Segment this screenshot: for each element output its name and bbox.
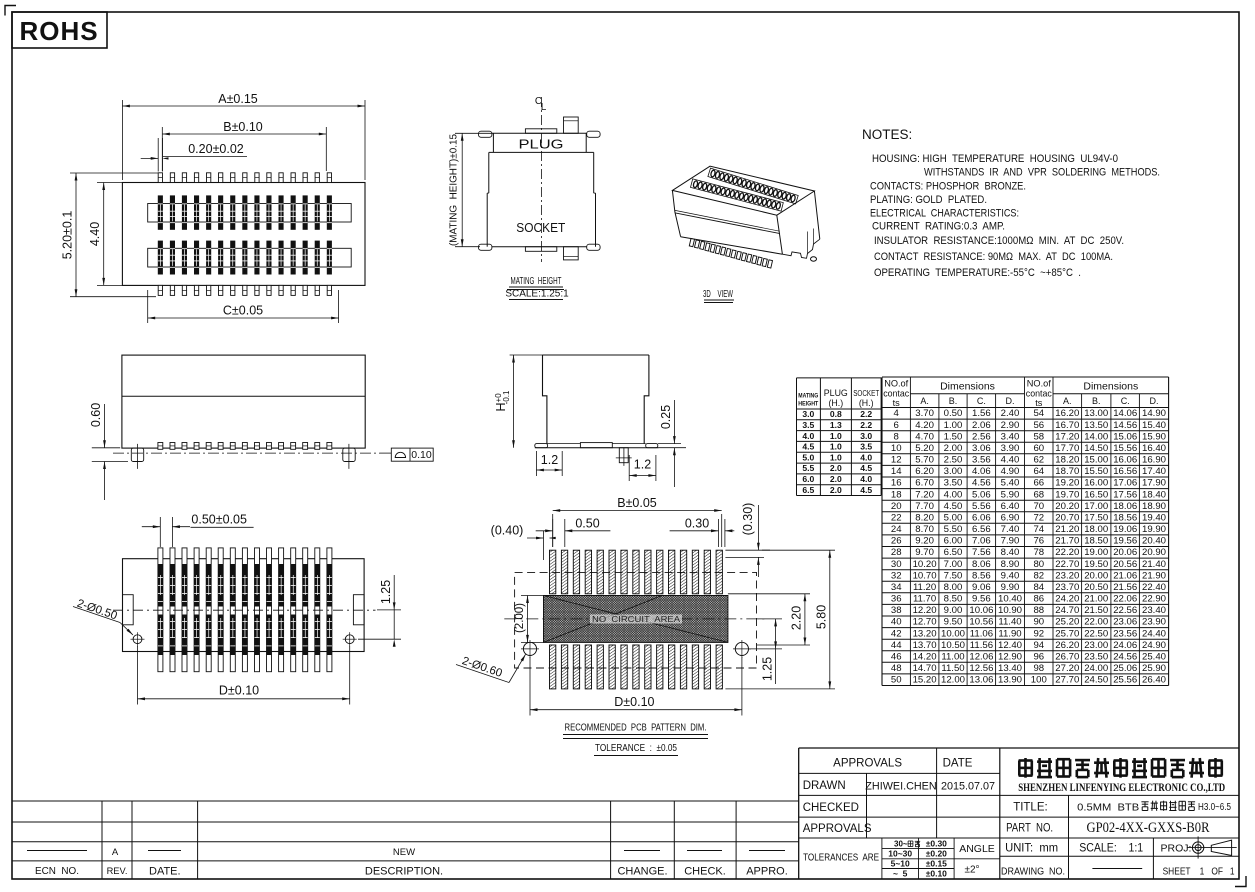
svg-text:19.50: 19.50 <box>1084 559 1108 570</box>
svg-text:44: 44 <box>891 640 902 651</box>
svg-text:19.40: 19.40 <box>1142 513 1166 524</box>
svg-text:17.56: 17.56 <box>1113 489 1137 500</box>
svg-text:58: 58 <box>1033 431 1044 442</box>
svg-text:6.06: 6.06 <box>972 513 991 524</box>
svg-text:18.40: 18.40 <box>1142 489 1166 500</box>
svg-text:6.5: 6.5 <box>802 485 814 495</box>
svg-text:~ 5: ~ 5 <box>893 868 908 878</box>
svg-text:11.40: 11.40 <box>998 617 1021 628</box>
svg-text:42: 42 <box>891 628 902 639</box>
svg-text:7.06: 7.06 <box>972 536 991 547</box>
svg-text:16.90: 16.90 <box>1142 455 1166 466</box>
svg-text:10.70: 10.70 <box>913 570 937 581</box>
svg-text:12.20: 12.20 <box>913 605 937 616</box>
svg-text:7.40: 7.40 <box>1001 524 1020 535</box>
svg-text:25.90: 25.90 <box>1142 663 1166 674</box>
svg-text:23.40: 23.40 <box>1142 605 1166 616</box>
svg-text:5.06: 5.06 <box>972 489 991 500</box>
svg-text:(H.): (H.) <box>828 398 843 408</box>
svg-text:1.25: 1.25 <box>761 657 775 681</box>
svg-text:80: 80 <box>1033 559 1044 570</box>
svg-text:INSULATOR RESISTANCE:1000MΩ: INSULATOR RESISTANCE:1000MΩ MIN. AT DC 2… <box>874 235 1124 247</box>
svg-text:SOCKET: SOCKET <box>853 389 879 398</box>
svg-text:14.20: 14.20 <box>913 652 937 663</box>
svg-text:21.00: 21.00 <box>1084 594 1108 605</box>
svg-text:14: 14 <box>891 466 902 477</box>
svg-text:OPERATING TEMPERATURE:-55°C: OPERATING TEMPERATURE:-55°C ~+85°C . <box>874 267 1081 279</box>
svg-text:25.56: 25.56 <box>1113 675 1137 686</box>
svg-text:21.50: 21.50 <box>1084 605 1108 616</box>
svg-text:100: 100 <box>1031 675 1047 686</box>
svg-text:36: 36 <box>891 594 902 605</box>
svg-text:9.00: 9.00 <box>944 605 963 616</box>
svg-text:DRAWN: DRAWN <box>803 780 846 792</box>
svg-text:24.00: 24.00 <box>1084 663 1108 674</box>
svg-text:22.06: 22.06 <box>1113 594 1137 605</box>
svg-text:NO CIRCUIT AREA: NO CIRCUIT AREA <box>592 615 681 624</box>
svg-text:13.50: 13.50 <box>1084 420 1108 431</box>
svg-text:3.0: 3.0 <box>860 431 872 441</box>
svg-text:24: 24 <box>891 524 902 535</box>
svg-text:48: 48 <box>891 663 902 674</box>
svg-text:18.90: 18.90 <box>1142 501 1166 512</box>
svg-text:5.40: 5.40 <box>1001 478 1020 489</box>
svg-text:18.00: 18.00 <box>1084 524 1108 535</box>
svg-text:0.30: 0.30 <box>685 517 709 531</box>
svg-text:4.5: 4.5 <box>860 485 872 495</box>
svg-text:1.2: 1.2 <box>634 458 651 472</box>
svg-text:MATING: MATING <box>798 393 818 400</box>
svg-text:13.70: 13.70 <box>913 640 937 651</box>
svg-text:SHENZHEN LINFENYING ELECTRONIC: SHENZHEN LINFENYING ELECTRONIC CO.,LTD <box>1018 782 1225 794</box>
svg-text:24.20: 24.20 <box>1055 594 1079 605</box>
svg-text:18.70: 18.70 <box>1055 466 1079 477</box>
svg-text:22.90: 22.90 <box>1142 594 1166 605</box>
svg-text:8.50: 8.50 <box>944 594 963 605</box>
svg-text:15.00: 15.00 <box>1084 455 1108 466</box>
svg-text:1.0: 1.0 <box>830 452 842 462</box>
svg-text:16.00: 16.00 <box>1084 478 1108 489</box>
svg-text:2.0: 2.0 <box>830 474 842 484</box>
svg-text:ELECTRICAL CHARACTERISTICS:: ELECTRICAL CHARACTERISTICS: <box>870 208 1019 220</box>
svg-text:(0.40): (0.40) <box>491 524 524 538</box>
svg-text:16.56: 16.56 <box>1113 466 1137 477</box>
svg-text:20.56: 20.56 <box>1113 559 1137 570</box>
svg-text:20.06: 20.06 <box>1113 547 1137 558</box>
svg-text:23.06: 23.06 <box>1113 617 1137 628</box>
svg-text:6: 6 <box>894 420 899 431</box>
svg-text:Dimensions: Dimensions <box>1083 381 1138 393</box>
svg-text:4.20: 4.20 <box>915 420 934 431</box>
svg-text:13.40: 13.40 <box>998 663 1022 674</box>
svg-text:30~: 30~ <box>894 839 908 848</box>
svg-text:11.06: 11.06 <box>970 628 993 639</box>
svg-text:contac: contac <box>1026 389 1052 399</box>
svg-text:±0.15: ±0.15 <box>926 858 947 868</box>
svg-text:5.80: 5.80 <box>815 605 829 629</box>
svg-text:25.20: 25.20 <box>1055 617 1079 628</box>
svg-text:22.50: 22.50 <box>1084 628 1108 639</box>
svg-text:18.50: 18.50 <box>1084 536 1108 547</box>
svg-text:25.70: 25.70 <box>1055 628 1079 639</box>
svg-text:Dimensions: Dimensions <box>940 381 995 393</box>
svg-text:5.90: 5.90 <box>1001 489 1020 500</box>
svg-text:PLUG: PLUG <box>519 138 564 152</box>
svg-text:9.90: 9.90 <box>1001 582 1020 593</box>
svg-text:70: 70 <box>1033 501 1044 512</box>
svg-text:13.20: 13.20 <box>913 628 937 639</box>
svg-text:H3.0~6.5: H3.0~6.5 <box>1198 802 1231 813</box>
svg-text:L: L <box>541 102 547 113</box>
svg-text:90: 90 <box>1033 617 1044 628</box>
svg-text:16.20: 16.20 <box>1055 408 1079 419</box>
svg-text:0.50: 0.50 <box>575 517 599 531</box>
svg-text:23.56: 23.56 <box>1113 628 1137 639</box>
svg-text:11.90: 11.90 <box>998 628 1021 639</box>
svg-text:SCALE:1.25:1: SCALE:1.25:1 <box>505 289 569 300</box>
svg-text:1.3: 1.3 <box>830 420 842 430</box>
svg-text:1.0: 1.0 <box>830 442 842 452</box>
svg-text:C.: C. <box>977 396 986 406</box>
svg-text:3.70: 3.70 <box>915 408 934 419</box>
svg-text:8.40: 8.40 <box>1001 547 1020 558</box>
svg-text:3D VIEW: 3D VIEW <box>703 289 733 300</box>
svg-text:20: 20 <box>891 501 902 512</box>
svg-text:PLUG: PLUG <box>824 388 848 398</box>
svg-text:NO.of: NO.of <box>1027 379 1051 389</box>
svg-text:A.: A. <box>920 396 929 406</box>
svg-text:B.: B. <box>1092 396 1101 406</box>
svg-text:TITLE:: TITLE: <box>1013 802 1048 814</box>
svg-text:7.20: 7.20 <box>915 489 934 500</box>
svg-text:18.06: 18.06 <box>1113 501 1137 512</box>
svg-text:21.56: 21.56 <box>1113 582 1137 593</box>
svg-text:contac: contac <box>883 389 909 399</box>
svg-text:CHANGE.: CHANGE. <box>617 866 667 878</box>
svg-text:ts: ts <box>893 398 901 408</box>
svg-text:22.40: 22.40 <box>1142 582 1166 593</box>
svg-text:5.70: 5.70 <box>915 455 934 466</box>
svg-text:TOLERANCE : ±0.05: TOLERANCE : ±0.05 <box>595 742 677 754</box>
svg-text:56: 56 <box>1033 420 1044 431</box>
svg-text:3.56: 3.56 <box>972 455 991 466</box>
svg-text:2.40: 2.40 <box>1001 408 1020 419</box>
svg-text:20.90: 20.90 <box>1142 547 1166 558</box>
svg-text:94: 94 <box>1033 640 1044 651</box>
svg-text:0.60: 0.60 <box>89 403 103 427</box>
svg-text:B±0.10: B±0.10 <box>223 120 263 134</box>
svg-text:13.00: 13.00 <box>1084 408 1108 419</box>
svg-text:±0.30: ±0.30 <box>926 838 947 848</box>
svg-text:CURRENT RATING:0.3 AMP.: CURRENT RATING:0.3 AMP. <box>872 221 1005 233</box>
svg-text:4.90: 4.90 <box>1001 466 1020 477</box>
svg-text:17.40: 17.40 <box>1142 466 1166 477</box>
svg-text:17.50: 17.50 <box>1084 513 1108 524</box>
svg-text:78: 78 <box>1033 547 1044 558</box>
svg-text:16.40: 16.40 <box>1142 443 1166 454</box>
svg-text:14.50: 14.50 <box>1084 443 1108 454</box>
svg-text:4.56: 4.56 <box>972 478 991 489</box>
svg-text:54: 54 <box>1033 408 1044 419</box>
svg-text:DATE.: DATE. <box>149 866 181 878</box>
svg-text:98: 98 <box>1033 663 1044 674</box>
svg-text:10.00: 10.00 <box>941 628 965 639</box>
svg-text:6.56: 6.56 <box>972 524 991 535</box>
svg-text:NEW: NEW <box>393 847 415 858</box>
svg-text:10.20: 10.20 <box>913 559 937 570</box>
svg-text:APPROVALS: APPROVALS <box>803 823 872 835</box>
svg-text:19.90: 19.90 <box>1142 524 1166 535</box>
svg-text:2015.07.07: 2015.07.07 <box>941 780 995 792</box>
svg-text:TOLERANCES ARE: TOLERANCES ARE <box>803 853 879 864</box>
svg-text:ZHIWEI.CHEN: ZHIWEI.CHEN <box>865 780 936 792</box>
svg-text:38: 38 <box>891 605 902 616</box>
svg-text:72: 72 <box>1033 513 1044 524</box>
svg-text:ANGLE: ANGLE <box>959 843 995 855</box>
svg-text:8: 8 <box>894 431 899 442</box>
svg-text:7.56: 7.56 <box>972 547 991 558</box>
svg-text:17.20: 17.20 <box>1055 431 1079 442</box>
svg-text:40: 40 <box>891 617 902 628</box>
svg-text:82: 82 <box>1033 570 1044 581</box>
svg-text:CONTACT RESISTANCE: 90MΩ MAX: CONTACT RESISTANCE: 90MΩ MAX. AT DC 100M… <box>874 251 1113 263</box>
svg-text:96: 96 <box>1033 652 1044 663</box>
svg-text:UNIT: mm: UNIT: mm <box>1005 842 1058 854</box>
svg-text:26.20: 26.20 <box>1055 640 1079 651</box>
svg-text:24.70: 24.70 <box>1055 605 1079 616</box>
svg-text:7.70: 7.70 <box>915 501 934 512</box>
svg-text:74: 74 <box>1033 524 1044 535</box>
svg-text:ECN NO.: ECN NO. <box>35 866 79 877</box>
svg-text:(2.00): (2.00) <box>514 603 526 633</box>
svg-text:23.90: 23.90 <box>1142 617 1166 628</box>
svg-text:3.90: 3.90 <box>1001 443 1020 454</box>
svg-text:B±0.05: B±0.05 <box>617 496 657 510</box>
svg-text:14.90: 14.90 <box>1142 408 1166 419</box>
svg-text:APPRO.: APPRO. <box>746 866 788 878</box>
svg-text:7.50: 7.50 <box>944 570 963 581</box>
svg-text:6.20: 6.20 <box>915 466 934 477</box>
svg-text:10.50: 10.50 <box>941 640 965 651</box>
svg-text:0.8: 0.8 <box>830 409 842 419</box>
svg-text:23.50: 23.50 <box>1084 652 1108 663</box>
svg-text:13.90: 13.90 <box>998 675 1022 686</box>
svg-text:27.20: 27.20 <box>1055 663 1079 674</box>
svg-text:D.: D. <box>1150 396 1159 406</box>
svg-text:92: 92 <box>1033 628 1044 639</box>
svg-text:19.70: 19.70 <box>1055 489 1079 500</box>
svg-text:9.50: 9.50 <box>944 617 963 628</box>
svg-text:2.50: 2.50 <box>944 455 963 466</box>
svg-text:46: 46 <box>891 652 902 663</box>
svg-text:50: 50 <box>891 675 902 686</box>
svg-text:6.90: 6.90 <box>1001 513 1020 524</box>
svg-text:(MATING HEIGHT)±0.15: (MATING HEIGHT)±0.15 <box>448 134 460 246</box>
svg-text:8.70: 8.70 <box>915 524 934 535</box>
svg-text:24.90: 24.90 <box>1142 640 1166 651</box>
svg-text:5.20: 5.20 <box>915 443 934 454</box>
svg-text:2.2: 2.2 <box>860 420 872 430</box>
svg-text:23.20: 23.20 <box>1055 570 1079 581</box>
svg-text:12.90: 12.90 <box>998 652 1022 663</box>
svg-text:8.06: 8.06 <box>972 559 991 570</box>
svg-text:12.56: 12.56 <box>969 663 993 674</box>
svg-text:8.90: 8.90 <box>1001 559 1020 570</box>
svg-text:0.10: 0.10 <box>411 449 432 461</box>
svg-text:0.50±0.05: 0.50±0.05 <box>191 513 247 527</box>
svg-text:A: A <box>112 847 119 858</box>
svg-text:DRAWING NO.: DRAWING NO. <box>1001 865 1065 877</box>
svg-text:D.: D. <box>1006 396 1015 406</box>
svg-text:NO.of: NO.of <box>884 379 908 389</box>
svg-text:9.70: 9.70 <box>915 547 934 558</box>
svg-text:DESCRIPTION.: DESCRIPTION. <box>365 866 443 878</box>
svg-text:4.50: 4.50 <box>944 501 963 512</box>
svg-text:5.00: 5.00 <box>944 513 963 524</box>
svg-text:NOTES:: NOTES: <box>862 127 912 142</box>
svg-text:1.0: 1.0 <box>830 431 842 441</box>
svg-text:PROJ:: PROJ: <box>1161 843 1192 855</box>
svg-text:±0.20: ±0.20 <box>926 849 947 859</box>
svg-text:62: 62 <box>1033 455 1044 466</box>
svg-text:21.20: 21.20 <box>1055 524 1079 535</box>
svg-text:4.40: 4.40 <box>1001 455 1020 466</box>
svg-text:11.56: 11.56 <box>970 640 993 651</box>
svg-text:86: 86 <box>1033 594 1044 605</box>
svg-text:APPROVALS: APPROVALS <box>833 758 902 770</box>
svg-text:4.0: 4.0 <box>860 474 872 484</box>
svg-text:±2°: ±2° <box>964 865 979 876</box>
svg-text:SHEET 1 OF 1: SHEET 1 OF 1 <box>1163 865 1235 877</box>
svg-text:5.5: 5.5 <box>802 463 814 473</box>
svg-text:12.06: 12.06 <box>969 652 993 663</box>
svg-text:64: 64 <box>1033 466 1044 477</box>
svg-text:10.06: 10.06 <box>969 605 993 616</box>
svg-text:4.40: 4.40 <box>88 222 102 246</box>
svg-text:3.5: 3.5 <box>860 442 872 452</box>
svg-text:A.: A. <box>1063 396 1072 406</box>
svg-text:11.00: 11.00 <box>941 652 964 663</box>
svg-text:11.20: 11.20 <box>913 582 936 593</box>
svg-text:1.56: 1.56 <box>972 408 991 419</box>
svg-text:PLATING: GOLD PLATED.: PLATING: GOLD PLATED. <box>870 194 987 206</box>
svg-text:7.00: 7.00 <box>944 559 963 570</box>
svg-text:REV.: REV. <box>107 866 128 876</box>
svg-text:16.70: 16.70 <box>1055 420 1079 431</box>
svg-text:15.90: 15.90 <box>1142 431 1166 442</box>
svg-text:21.40: 21.40 <box>1142 559 1166 570</box>
svg-text:66: 66 <box>1033 478 1044 489</box>
svg-text:2.0: 2.0 <box>830 485 842 495</box>
svg-text:12.40: 12.40 <box>998 640 1022 651</box>
svg-text:34: 34 <box>891 582 902 593</box>
svg-text:4.00: 4.00 <box>944 489 963 500</box>
svg-text:2.00: 2.00 <box>944 443 963 454</box>
svg-text:0.50: 0.50 <box>944 408 963 419</box>
svg-text:10: 10 <box>891 443 902 454</box>
svg-text:12: 12 <box>891 455 902 466</box>
svg-text:21.06: 21.06 <box>1113 570 1137 581</box>
svg-text:4.70: 4.70 <box>915 431 934 442</box>
svg-text:26.40: 26.40 <box>1142 675 1166 686</box>
svg-text:SCALE: 1:1: SCALE: 1:1 <box>1079 842 1143 854</box>
svg-text:32: 32 <box>891 570 902 581</box>
svg-text:3.50: 3.50 <box>944 478 963 489</box>
svg-text:10.56: 10.56 <box>969 617 993 628</box>
svg-text:C±0.05: C±0.05 <box>223 304 263 318</box>
svg-text:9.20: 9.20 <box>915 536 934 547</box>
svg-text:(H.): (H.) <box>859 398 874 408</box>
svg-text:DATE: DATE <box>943 758 973 770</box>
svg-text:14.56: 14.56 <box>1113 420 1137 431</box>
svg-text:24.56: 24.56 <box>1113 652 1137 663</box>
svg-text:PART NO.: PART NO. <box>1006 822 1053 834</box>
svg-text:6.00: 6.00 <box>944 536 963 547</box>
svg-text:17.90: 17.90 <box>1142 478 1166 489</box>
svg-text:5.56: 5.56 <box>972 501 991 512</box>
svg-text:15.20: 15.20 <box>913 675 937 686</box>
svg-text:3.40: 3.40 <box>1001 431 1020 442</box>
svg-text:1.25: 1.25 <box>379 580 393 604</box>
svg-text:18.20: 18.20 <box>1055 455 1079 466</box>
svg-text:12.00: 12.00 <box>941 675 965 686</box>
svg-text:20.40: 20.40 <box>1142 536 1166 547</box>
svg-text:25.06: 25.06 <box>1113 663 1137 674</box>
svg-text:2.90: 2.90 <box>1001 420 1020 431</box>
svg-text:17.00: 17.00 <box>1084 501 1108 512</box>
svg-text:±0.10: ±0.10 <box>926 868 947 878</box>
svg-text:20.20: 20.20 <box>1055 501 1079 512</box>
svg-text:6.0: 6.0 <box>802 474 814 484</box>
svg-text:6.70: 6.70 <box>915 478 934 489</box>
svg-text:3.00: 3.00 <box>944 466 963 477</box>
svg-text:21.90: 21.90 <box>1142 570 1166 581</box>
svg-text:24.50: 24.50 <box>1084 675 1108 686</box>
svg-text:1.2: 1.2 <box>541 453 558 467</box>
svg-text:5.0: 5.0 <box>802 452 814 462</box>
svg-text:WITHSTANDS IR AND VPR SOLD: WITHSTANDS IR AND VPR SOLDERING METHODS. <box>924 167 1160 179</box>
svg-text:23.70: 23.70 <box>1055 582 1079 593</box>
svg-text:19.56: 19.56 <box>1113 536 1137 547</box>
svg-text:14.00: 14.00 <box>1084 431 1108 442</box>
svg-text:4.5: 4.5 <box>860 463 872 473</box>
svg-text:15.40: 15.40 <box>1142 420 1166 431</box>
svg-text:21.70: 21.70 <box>1055 536 1079 547</box>
svg-text:1.00: 1.00 <box>944 420 963 431</box>
svg-text:9.56: 9.56 <box>972 594 991 605</box>
svg-text:A±0.15: A±0.15 <box>218 92 258 106</box>
svg-text:15.56: 15.56 <box>1113 443 1137 454</box>
svg-text:60: 60 <box>1033 443 1044 454</box>
svg-text:16: 16 <box>891 478 902 489</box>
svg-text:11.50: 11.50 <box>941 663 964 674</box>
svg-text:CHECKED: CHECKED <box>803 802 859 814</box>
svg-text:22.20: 22.20 <box>1055 547 1079 558</box>
svg-text:15.06: 15.06 <box>1113 431 1137 442</box>
svg-text:4: 4 <box>894 408 900 419</box>
svg-text:(0.30): (0.30) <box>741 503 755 536</box>
svg-text:9.06: 9.06 <box>972 582 991 593</box>
svg-text:2.2: 2.2 <box>860 409 872 419</box>
svg-text:GP02-4XX-GXXS-B0R: GP02-4XX-GXXS-B0R <box>1087 820 1210 836</box>
svg-text:4.0: 4.0 <box>802 431 814 441</box>
svg-text:ROHS: ROHS <box>19 16 98 46</box>
svg-text:24.06: 24.06 <box>1113 640 1137 651</box>
svg-text:14.06: 14.06 <box>1113 408 1137 419</box>
svg-text:20.00: 20.00 <box>1084 570 1108 581</box>
svg-text:19.00: 19.00 <box>1084 547 1108 558</box>
svg-text:0.20±0.02: 0.20±0.02 <box>188 142 244 156</box>
